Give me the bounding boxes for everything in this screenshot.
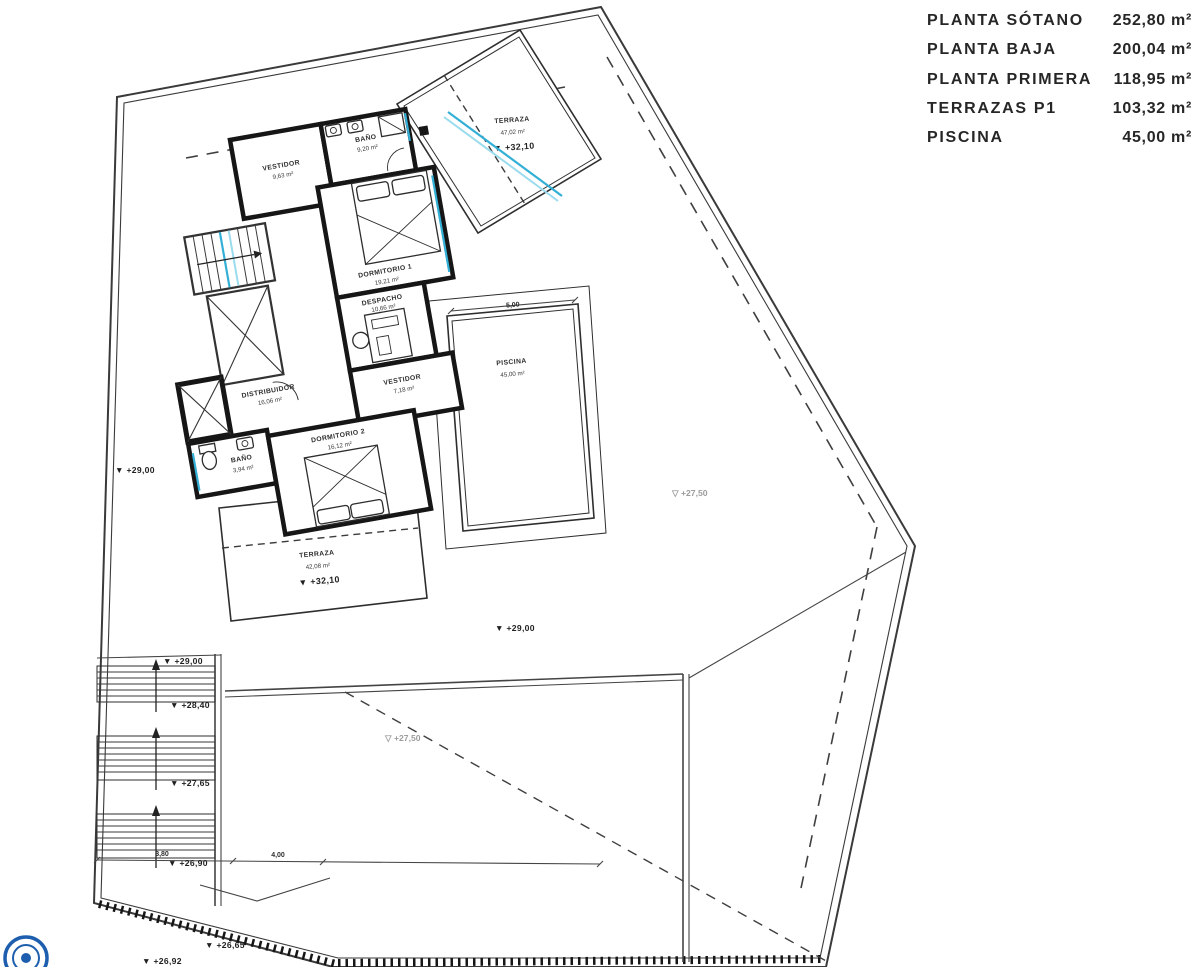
level-marker: ▼ +26,65 [205,940,245,950]
site-walls [97,552,906,962]
up-arrow-icon [152,805,160,816]
legend-label: TERRAZAS P1 [927,100,1057,117]
level-marker: ▼ +27,65 [170,778,210,788]
up-arrow-icon [152,659,160,670]
column [419,125,429,135]
bed-dormitorio-2 [304,445,389,527]
legend-value: 252,80 m² [1113,12,1192,29]
level-marker: ▼ +29,00 [115,465,155,475]
legend-value: 200,04 m² [1113,41,1192,58]
dim-380: 3,80 [155,851,169,858]
area-distribuidor: 16,06 m² [257,396,282,407]
up-arrow-icon [152,727,160,738]
pool-area: PISCINA 45,00 m² 5,00 9,00 [429,286,606,549]
elevator-shaft-1 [207,286,284,385]
elevator-shaft-2 [178,377,231,442]
logo-badge [5,937,47,967]
level-marker: ▼ +29,00 [495,623,535,633]
interior-stairs [184,223,275,294]
drainage-line [200,878,330,901]
level-marker-gray: ▽ +27,50 [384,733,421,743]
legend-label: PLANTA BAJA [927,41,1057,58]
level-marker-gray: ▽ +27,50 [671,488,708,498]
legend-label: PLANTA PRIMERA [927,71,1092,88]
legend-label: PLANTA SÓTANO [927,10,1084,29]
area-legend: PLANTA SÓTANO 252,80 m² PLANTA BAJA 200,… [927,10,1192,146]
floor-plan-page: 3,80 4,00 TERRAZA 47,02 m² ▼ +32,10 TERR… [0,0,1200,967]
floor-plan-canvas: 3,80 4,00 TERRAZA 47,02 m² ▼ +32,10 TERR… [0,0,1200,967]
legend-value: 45,00 m² [1122,129,1192,146]
legend-value: 118,95 m² [1114,71,1192,88]
bed-dormitorio-1 [351,170,440,264]
level-marker: ▼ +29,00 [163,656,203,666]
level-marker: ▼ +26,90 [168,858,208,868]
legend-label: PISCINA [927,129,1004,146]
pool [447,304,594,531]
dim-400: 4,00 [271,852,285,859]
retaining-hatch-bottom [338,959,822,963]
legend-value: 103,32 m² [1113,100,1192,117]
pool-dim-width: 5,00 [506,301,520,309]
exterior-stairs: 3,80 4,00 [94,659,603,868]
level-marker: ▼ +26,92 [142,956,182,966]
level-marker: ▼ +28,40 [170,700,210,710]
